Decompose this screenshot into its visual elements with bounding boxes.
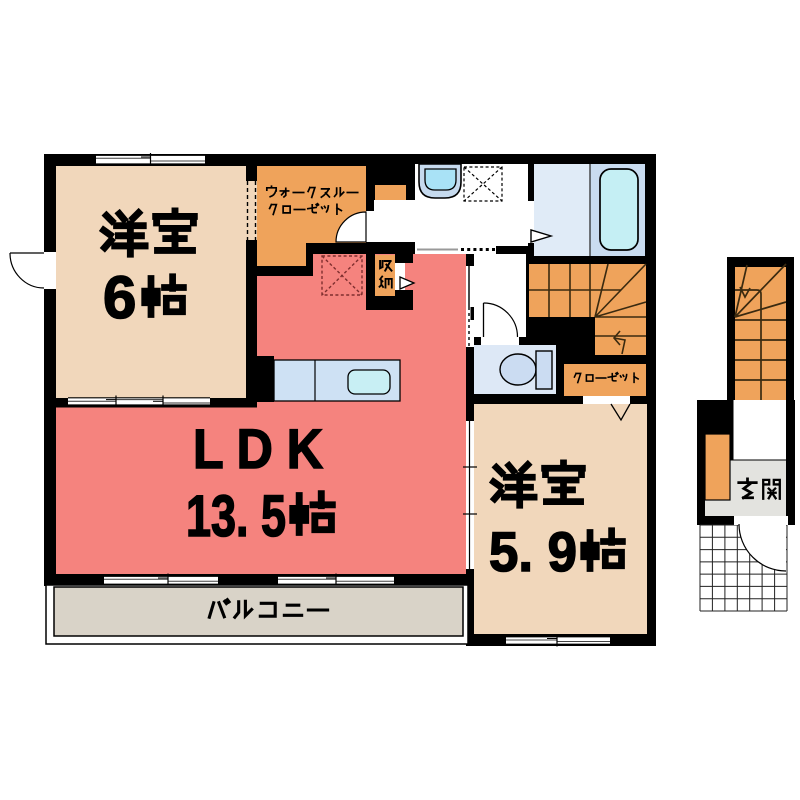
- svg-text:13. 5: 13. 5: [186, 484, 286, 549]
- svg-text:5. 9: 5. 9: [489, 520, 577, 583]
- svg-text:L D K: L D K: [193, 417, 323, 480]
- svg-text:6: 6: [103, 264, 136, 331]
